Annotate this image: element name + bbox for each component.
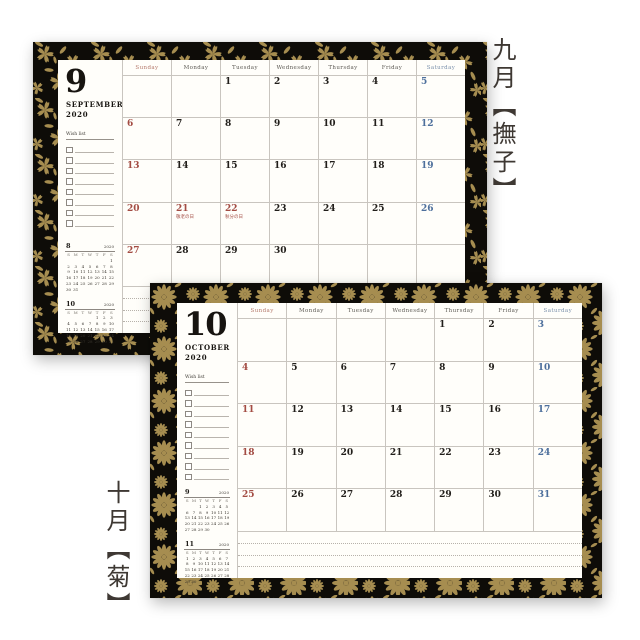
calendar-product-photo: 9 SEPTEMBER 2020 Wish list 82020SMTWTFS1… <box>0 0 640 640</box>
week-row: 123 <box>238 319 582 362</box>
wishlist-row <box>185 438 229 449</box>
date-number: 17 <box>323 162 367 172</box>
wishlist-row <box>185 449 229 460</box>
mini-date-cell <box>108 287 115 293</box>
wishlist-checkbox <box>66 189 73 196</box>
date-number: 30 <box>274 247 318 257</box>
mini-year: 2020 <box>219 542 229 547</box>
mini-date-cell <box>223 527 230 533</box>
date-cell: 17 <box>534 404 582 446</box>
month-number: 10 <box>184 308 237 340</box>
weekday-header-friday: Friday <box>484 303 533 318</box>
month-name: SEPTEMBER <box>66 100 122 109</box>
wishlist-row <box>185 407 229 418</box>
mini-date-cell: 30 <box>65 287 72 293</box>
weekday-header-row: SundayMondayTuesdayWednesdayThursdayFrid… <box>123 60 465 76</box>
weekday-header-wednesday: Wednesday <box>386 303 435 318</box>
mini-calendar-list: 82020SMTWTFS1234567891011121314151617181… <box>65 242 115 351</box>
week-row: 2021敬老の日22秋分の日23242526 <box>123 203 465 245</box>
wishlist-row <box>185 386 229 397</box>
date-cell: 15 <box>435 404 484 446</box>
month-year: 2020 <box>185 353 237 362</box>
date-cell: 9 <box>270 118 319 159</box>
date-number: 12 <box>421 120 465 130</box>
date-number: 6 <box>127 120 171 130</box>
mini-year: 2020 <box>219 490 229 495</box>
date-number: 29 <box>225 247 269 257</box>
date-number: 28 <box>390 491 434 501</box>
wishlist-line <box>75 184 115 185</box>
caption-october-kiku: 十月【菊】 <box>104 480 128 620</box>
date-cell: 31 <box>534 489 582 531</box>
date-cell <box>386 319 435 361</box>
date-number: 2 <box>488 321 532 331</box>
date-number: 10 <box>538 364 582 374</box>
mini-calendar: 102020SMTWTFS123456789101112131415161718… <box>65 300 115 345</box>
wishlist-checkbox <box>185 463 192 470</box>
date-cell: 5 <box>287 362 336 404</box>
date-number: 22 <box>225 205 269 215</box>
mini-date-cell: 28 <box>86 339 93 345</box>
mini-date-cell: 30 <box>191 579 198 585</box>
date-cell: 23 <box>270 203 319 244</box>
date-number: 7 <box>176 120 220 130</box>
wishlist-checkbox <box>185 442 192 449</box>
mini-date-cell: 30 <box>101 339 108 345</box>
wishlist-checkbox <box>66 147 73 154</box>
mini-date-cell <box>210 527 217 533</box>
date-number: 11 <box>372 120 416 130</box>
mini-month-number: 9 <box>185 488 190 496</box>
date-cell: 18 <box>238 447 287 489</box>
wishlist-row <box>66 206 114 217</box>
mini-date-cell <box>217 527 224 533</box>
wishlist-line <box>75 194 115 195</box>
mini-week-row: 25262728293031 <box>65 339 115 345</box>
calendar-sheet-october: 10 OCTOBER 2020 Wish list 92020SMTWTFS12… <box>177 303 582 578</box>
sidebar-september: 9 SEPTEMBER 2020 Wish list 82020SMTWTFS1… <box>58 60 122 333</box>
date-number: 17 <box>538 406 582 416</box>
mini-year: 2020 <box>104 302 114 307</box>
mini-date-cell: 30 <box>204 527 211 533</box>
wishlist-line <box>75 152 115 153</box>
wishlist-line <box>194 437 230 438</box>
wishlist-line <box>194 406 230 407</box>
date-number: 26 <box>291 491 335 501</box>
date-cell: 2 <box>484 319 533 361</box>
wishlist-row <box>185 428 229 439</box>
weekday-header-saturday: Saturday <box>534 303 582 318</box>
mini-calendar-list: 92020SMTWTFS1234567891011121314151617181… <box>184 488 230 592</box>
date-cell: 19 <box>417 160 465 201</box>
wishlist-row <box>66 195 114 206</box>
mini-date-cell: 29 <box>184 579 191 585</box>
month-number: 9 <box>65 65 122 97</box>
notes-lines <box>238 532 582 578</box>
date-cell: 7 <box>172 118 221 159</box>
week-row: 13141516171819 <box>123 160 465 202</box>
date-number: 15 <box>439 406 483 416</box>
date-number: 29 <box>439 491 483 501</box>
date-cell: 12 <box>287 404 336 446</box>
date-number: 28 <box>176 247 220 257</box>
date-number: 19 <box>291 449 335 459</box>
week-row: 11121314151617 <box>238 404 582 447</box>
mini-date-cell <box>217 579 224 585</box>
wishlist-row <box>66 185 114 196</box>
date-number: 16 <box>488 406 532 416</box>
date-number: 18 <box>372 162 416 172</box>
wishlist-line <box>194 479 230 480</box>
date-cell: 10 <box>534 362 582 404</box>
date-cell <box>319 245 368 286</box>
caption-september-nadeshiko: 九月【撫子】 <box>490 37 514 205</box>
date-cell: 26 <box>287 489 336 531</box>
week-row: 6789101112 <box>123 118 465 160</box>
date-cell: 19 <box>287 447 336 489</box>
mini-date-cell <box>86 287 93 293</box>
mini-week-row: 27282930 <box>184 527 230 533</box>
wishlist-checkbox <box>185 390 192 397</box>
mini-calendar: 112020SMTWTFS123456789101112131415161718… <box>184 540 230 585</box>
date-number: 8 <box>439 364 483 374</box>
note-line <box>238 566 582 567</box>
date-cell: 1 <box>221 76 270 117</box>
wishlist-line <box>194 427 230 428</box>
date-number: 7 <box>390 364 434 374</box>
date-cell: 23 <box>484 447 533 489</box>
weekday-header-friday: Friday <box>368 60 417 75</box>
wishlist-checkbox <box>185 432 192 439</box>
wishlist-line <box>75 215 115 216</box>
wishlist-checkbox <box>185 453 192 460</box>
wishlist-label: Wish list <box>185 375 229 383</box>
date-number: 13 <box>341 406 385 416</box>
date-cell <box>337 319 386 361</box>
date-cell: 29 <box>221 245 270 286</box>
date-number: 25 <box>372 205 416 215</box>
wishlist-line <box>75 173 115 174</box>
sidebar-october: 10 OCTOBER 2020 Wish list 92020SMTWTFS12… <box>177 303 237 578</box>
date-cell: 15 <box>221 160 270 201</box>
mini-date-cell: 27 <box>184 527 191 533</box>
date-number: 3 <box>323 78 367 88</box>
date-number: 23 <box>274 205 318 215</box>
mini-date-cell: 31 <box>72 287 79 293</box>
date-cell: 11 <box>368 118 417 159</box>
wishlist-checkbox <box>66 220 73 227</box>
date-number: 21 <box>390 449 434 459</box>
date-cell: 13 <box>123 160 172 201</box>
date-number: 16 <box>274 162 318 172</box>
wishlist-line <box>75 205 115 206</box>
wishlist-row <box>66 164 114 175</box>
date-number: 12 <box>291 406 335 416</box>
date-cell <box>172 76 221 117</box>
note-line <box>238 543 582 544</box>
mini-date-cell: 28 <box>191 527 198 533</box>
weekday-header-thursday: Thursday <box>319 60 368 75</box>
date-cell: 1 <box>435 319 484 361</box>
date-number: 10 <box>323 120 367 130</box>
date-cell: 21敬老の日 <box>172 203 221 244</box>
date-cell <box>287 319 336 361</box>
weekday-header-sunday: Sunday <box>238 303 287 318</box>
holiday-label: 秋分の日 <box>225 215 269 221</box>
date-cell: 27 <box>123 245 172 286</box>
date-number: 4 <box>372 78 416 88</box>
wishlist-checkbox <box>66 178 73 185</box>
mini-date-cell <box>101 287 108 293</box>
date-cell: 14 <box>386 404 435 446</box>
date-number: 21 <box>176 205 220 215</box>
wishlist-checkbox <box>66 157 73 164</box>
date-number: 20 <box>127 205 171 215</box>
weekday-header-tuesday: Tuesday <box>221 60 270 75</box>
date-cell: 3 <box>319 76 368 117</box>
mini-date-cell <box>94 287 101 293</box>
wishlist-row <box>66 153 114 164</box>
mini-date-cell <box>197 579 204 585</box>
calendar-page-october: 10 OCTOBER 2020 Wish list 92020SMTWTFS12… <box>150 283 602 598</box>
date-cell: 13 <box>337 404 386 446</box>
wishlist-line <box>194 448 230 449</box>
weekday-header-saturday: Saturday <box>417 60 465 75</box>
wishlist-row <box>66 174 114 185</box>
date-number: 14 <box>390 406 434 416</box>
mini-date-cell: 29 <box>197 527 204 533</box>
date-grid: 1234567891011121314151617181920212223242… <box>238 319 582 532</box>
date-number: 20 <box>341 449 385 459</box>
wishlist-line <box>194 469 230 470</box>
date-number: 9 <box>274 120 318 130</box>
date-number: 24 <box>538 449 582 459</box>
wishlist-row <box>185 470 229 481</box>
wishlist-row <box>185 396 229 407</box>
date-cell: 22 <box>435 447 484 489</box>
mini-month-number: 10 <box>66 300 75 308</box>
wishlist-label: Wish list <box>66 132 114 140</box>
date-number: 27 <box>127 247 171 257</box>
date-cell: 30 <box>270 245 319 286</box>
date-cell <box>123 76 172 117</box>
weekday-header-monday: Monday <box>172 60 221 75</box>
date-cell: 29 <box>435 489 484 531</box>
mini-date-cell <box>223 579 230 585</box>
wishlist-rows <box>185 386 229 481</box>
month-year: 2020 <box>66 110 122 119</box>
weekday-header-thursday: Thursday <box>435 303 484 318</box>
date-cell: 4 <box>238 362 287 404</box>
date-number: 15 <box>225 162 269 172</box>
mini-calendar: 82020SMTWTFS1234567891011121314151617181… <box>65 242 115 293</box>
date-cell: 26 <box>417 203 465 244</box>
mini-year: 2020 <box>104 244 114 249</box>
date-cell: 18 <box>368 160 417 201</box>
date-cell: 28 <box>386 489 435 531</box>
wishlist-line <box>194 458 230 459</box>
date-cell: 6 <box>337 362 386 404</box>
date-grid: 123456789101112131415161718192021敬老の日22秋… <box>123 76 465 287</box>
wishlist-line <box>75 163 115 164</box>
mini-date-cell: 26 <box>72 339 79 345</box>
mini-month-number: 8 <box>66 242 71 250</box>
date-cell <box>368 245 417 286</box>
date-cell: 8 <box>435 362 484 404</box>
wishlist-checkbox <box>185 421 192 428</box>
date-number: 31 <box>538 491 582 501</box>
wishlist-checkbox <box>66 168 73 175</box>
date-number: 8 <box>225 120 269 130</box>
note-line <box>238 555 582 556</box>
date-cell: 14 <box>172 160 221 201</box>
date-cell: 3 <box>534 319 582 361</box>
date-number: 3 <box>538 321 582 331</box>
date-cell: 30 <box>484 489 533 531</box>
date-cell: 22秋分の日 <box>221 203 270 244</box>
mini-week-row: 2930 <box>184 579 230 585</box>
date-number: 19 <box>421 162 465 172</box>
date-cell: 21 <box>386 447 435 489</box>
week-row: 25262728293031 <box>238 489 582 532</box>
mini-calendar-header: 82020 <box>65 242 115 252</box>
date-number: 24 <box>323 205 367 215</box>
date-cell: 2 <box>270 76 319 117</box>
date-number: 4 <box>242 364 286 374</box>
wishlist-line <box>75 226 115 227</box>
date-cell: 16 <box>484 404 533 446</box>
date-cell: 6 <box>123 118 172 159</box>
mini-week-row: 3031 <box>65 287 115 293</box>
date-cell: 16 <box>270 160 319 201</box>
mini-calendar: 92020SMTWTFS1234567891011121314151617181… <box>184 488 230 533</box>
date-number: 18 <box>242 449 286 459</box>
date-number: 14 <box>176 162 220 172</box>
week-row: 18192021222324 <box>238 447 582 490</box>
wishlist-row <box>66 143 114 154</box>
date-cell: 24 <box>534 447 582 489</box>
date-cell: 5 <box>417 76 465 117</box>
mini-calendar-header: 92020 <box>184 488 230 498</box>
mini-calendar-header: 102020 <box>65 300 115 310</box>
date-cell: 11 <box>238 404 287 446</box>
date-cell <box>238 319 287 361</box>
month-grid-october: SundayMondayTuesdayWednesdayThursdayFrid… <box>237 303 582 578</box>
weekday-header-monday: Monday <box>287 303 336 318</box>
date-number: 13 <box>127 162 171 172</box>
date-cell: 8 <box>221 118 270 159</box>
month-name: OCTOBER <box>185 343 237 352</box>
weekday-header-sunday: Sunday <box>123 60 172 75</box>
date-cell: 20 <box>123 203 172 244</box>
wishlist-row <box>185 417 229 428</box>
date-number: 5 <box>291 364 335 374</box>
date-cell: 10 <box>319 118 368 159</box>
date-cell: 12 <box>417 118 465 159</box>
date-number: 23 <box>488 449 532 459</box>
mini-date-cell: 27 <box>79 339 86 345</box>
wishlist-row <box>185 459 229 470</box>
wishlist-checkbox <box>185 474 192 481</box>
mini-date-cell <box>210 579 217 585</box>
date-cell: 7 <box>386 362 435 404</box>
weekday-header-wednesday: Wednesday <box>270 60 319 75</box>
date-number: 25 <box>242 491 286 501</box>
date-cell: 28 <box>172 245 221 286</box>
date-cell: 4 <box>368 76 417 117</box>
mini-date-cell <box>79 287 86 293</box>
date-cell: 24 <box>319 203 368 244</box>
date-number: 27 <box>341 491 385 501</box>
weekday-header-row: SundayMondayTuesdayWednesdayThursdayFrid… <box>238 303 582 319</box>
date-cell: 9 <box>484 362 533 404</box>
wishlist-line <box>194 416 230 417</box>
mini-date-cell: 31 <box>108 339 115 345</box>
week-row: 45678910 <box>238 362 582 405</box>
holiday-label: 敬老の日 <box>176 215 220 221</box>
mini-month-number: 11 <box>185 540 194 548</box>
date-cell: 25 <box>238 489 287 531</box>
mini-date-cell <box>204 579 211 585</box>
date-number: 1 <box>225 78 269 88</box>
date-cell: 20 <box>337 447 386 489</box>
date-number: 6 <box>341 364 385 374</box>
date-number: 5 <box>421 78 465 88</box>
week-row: 27282930 <box>123 245 465 287</box>
wishlist-checkbox <box>66 210 73 217</box>
wishlist-checkbox <box>66 199 73 206</box>
mini-date-cell: 25 <box>65 339 72 345</box>
mini-date-cell: 29 <box>94 339 101 345</box>
weekday-header-tuesday: Tuesday <box>337 303 386 318</box>
week-row: 12345 <box>123 76 465 118</box>
date-cell: 25 <box>368 203 417 244</box>
date-number: 9 <box>488 364 532 374</box>
date-number: 2 <box>274 78 318 88</box>
wishlist-row <box>66 216 114 227</box>
mini-calendar-header: 112020 <box>184 540 230 550</box>
date-cell <box>417 245 465 286</box>
wishlist-line <box>194 395 230 396</box>
date-number: 22 <box>439 449 483 459</box>
date-number: 1 <box>439 321 483 331</box>
date-number: 26 <box>421 205 465 215</box>
wishlist-checkbox <box>185 411 192 418</box>
date-number: 11 <box>242 406 286 416</box>
date-number: 30 <box>488 491 532 501</box>
wishlist-checkbox <box>185 400 192 407</box>
wishlist-rows <box>66 143 114 227</box>
date-cell: 27 <box>337 489 386 531</box>
date-cell: 17 <box>319 160 368 201</box>
